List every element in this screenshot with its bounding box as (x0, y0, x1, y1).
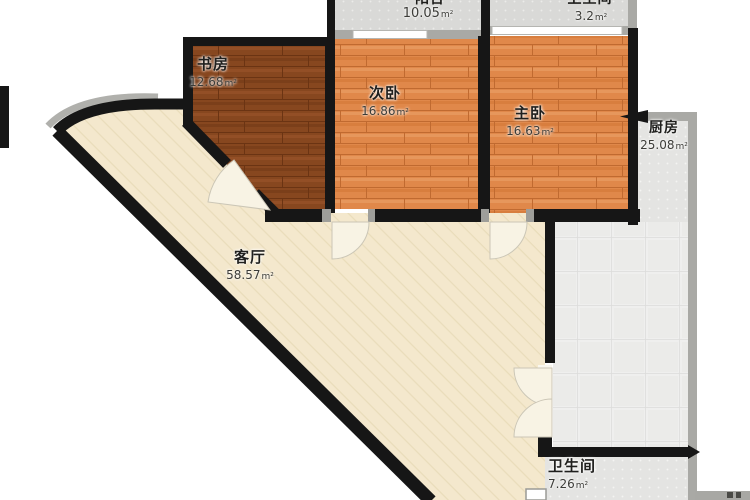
wall-master-right (628, 28, 638, 225)
wall-bedroom2-master (478, 36, 490, 213)
top-right-room-floor (490, 0, 628, 28)
wall-left-edge (0, 86, 9, 148)
corner-mark-2 (736, 492, 741, 498)
door-jamb-1 (322, 209, 331, 222)
door-jamb-2 (368, 209, 375, 222)
door-jamb-3 (481, 209, 489, 222)
bathroom-floor (545, 457, 688, 500)
wall-balcony-left (327, 0, 335, 37)
master-top-window (492, 27, 622, 35)
wall-living-right-upper (545, 213, 555, 363)
right-exterior-band (688, 112, 697, 500)
wall-bedrooms-bottom-b (368, 209, 488, 222)
master-bedroom-floor (490, 36, 628, 213)
wall-study-top (183, 37, 333, 46)
wall-bedrooms-bottom-a (265, 209, 330, 222)
wall-study-bedroom2 (325, 37, 335, 213)
bedroom2-floor (335, 37, 478, 209)
corner-gray-bar (695, 491, 750, 500)
wall-balcony-divider (481, 0, 490, 36)
wall-bathroom-top (548, 447, 688, 457)
balcony-window (353, 31, 427, 39)
floor-plan: 阳台 卫生间 10.05m² 3.2m² 书房 12.68m² 次卧 16.86… (0, 0, 750, 500)
kitchen-tile-floor (553, 222, 688, 447)
floor-plan-drawing (0, 0, 750, 500)
balcony-floor (335, 0, 482, 32)
wall-study-left (183, 43, 193, 125)
corner-mark-1 (727, 492, 733, 498)
sink-fixture (526, 489, 546, 500)
wall-bedrooms-bottom-c (527, 209, 640, 222)
topright-right-band (628, 0, 637, 30)
door-jamb-4 (526, 209, 534, 222)
kitchen-floor (637, 120, 688, 222)
